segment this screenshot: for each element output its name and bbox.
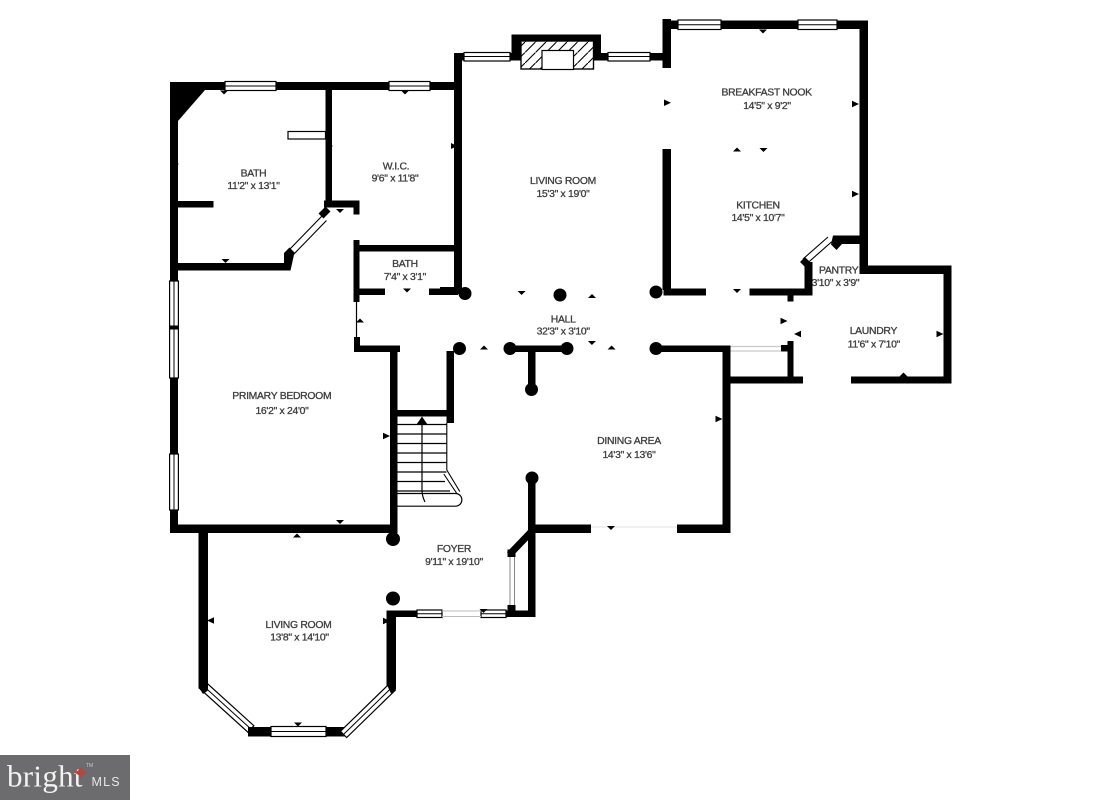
svg-text:PRIMARY BEDROOM: PRIMARY BEDROOM bbox=[232, 391, 331, 402]
svg-text:9'11" x 19'10": 9'11" x 19'10" bbox=[425, 557, 483, 568]
svg-text:BREAKFAST NOOK: BREAKFAST NOOK bbox=[721, 88, 812, 99]
svg-text:bright: bright bbox=[7, 759, 83, 794]
svg-text:16'2" x 24'0": 16'2" x 24'0" bbox=[255, 406, 309, 417]
svg-text:14'3" x 13'6": 14'3" x 13'6" bbox=[602, 450, 656, 461]
svg-text:11'6" x 7'10": 11'6" x 7'10" bbox=[848, 340, 901, 351]
svg-text:LIVING ROOM: LIVING ROOM bbox=[530, 176, 596, 187]
svg-text:PANTRY: PANTRY bbox=[819, 266, 859, 277]
svg-text:KITCHEN: KITCHEN bbox=[736, 201, 780, 212]
svg-text:7'4" x 3'1": 7'4" x 3'1" bbox=[384, 272, 427, 283]
svg-text:FOYER: FOYER bbox=[437, 544, 472, 555]
svg-text:3'10" x 3'9": 3'10" x 3'9" bbox=[812, 278, 860, 289]
svg-text:BATH: BATH bbox=[241, 169, 267, 180]
svg-text:MLS: MLS bbox=[92, 775, 121, 789]
svg-text:W.I.C.: W.I.C. bbox=[383, 162, 410, 173]
svg-text:32'3" x 3'10": 32'3" x 3'10" bbox=[537, 327, 591, 338]
svg-text:BATH: BATH bbox=[392, 259, 418, 270]
svg-text:11'2" x 13'1": 11'2" x 13'1" bbox=[227, 181, 280, 192]
svg-text:HALL: HALL bbox=[551, 314, 576, 325]
svg-text:TM: TM bbox=[86, 763, 93, 769]
svg-text:14'5" x 9'2": 14'5" x 9'2" bbox=[743, 101, 791, 112]
svg-text:LAUNDRY: LAUNDRY bbox=[850, 326, 898, 337]
svg-text:13'8" x 14'10": 13'8" x 14'10" bbox=[270, 633, 329, 644]
svg-text:14'5" x 10'7": 14'5" x 10'7" bbox=[731, 213, 785, 224]
svg-text:DINING AREA: DINING AREA bbox=[597, 436, 661, 447]
svg-text:15'3" x 19'0": 15'3" x 19'0" bbox=[536, 189, 590, 200]
svg-text:9'6" x 11'8": 9'6" x 11'8" bbox=[372, 174, 419, 185]
svg-text:LIVING ROOM: LIVING ROOM bbox=[266, 620, 332, 631]
